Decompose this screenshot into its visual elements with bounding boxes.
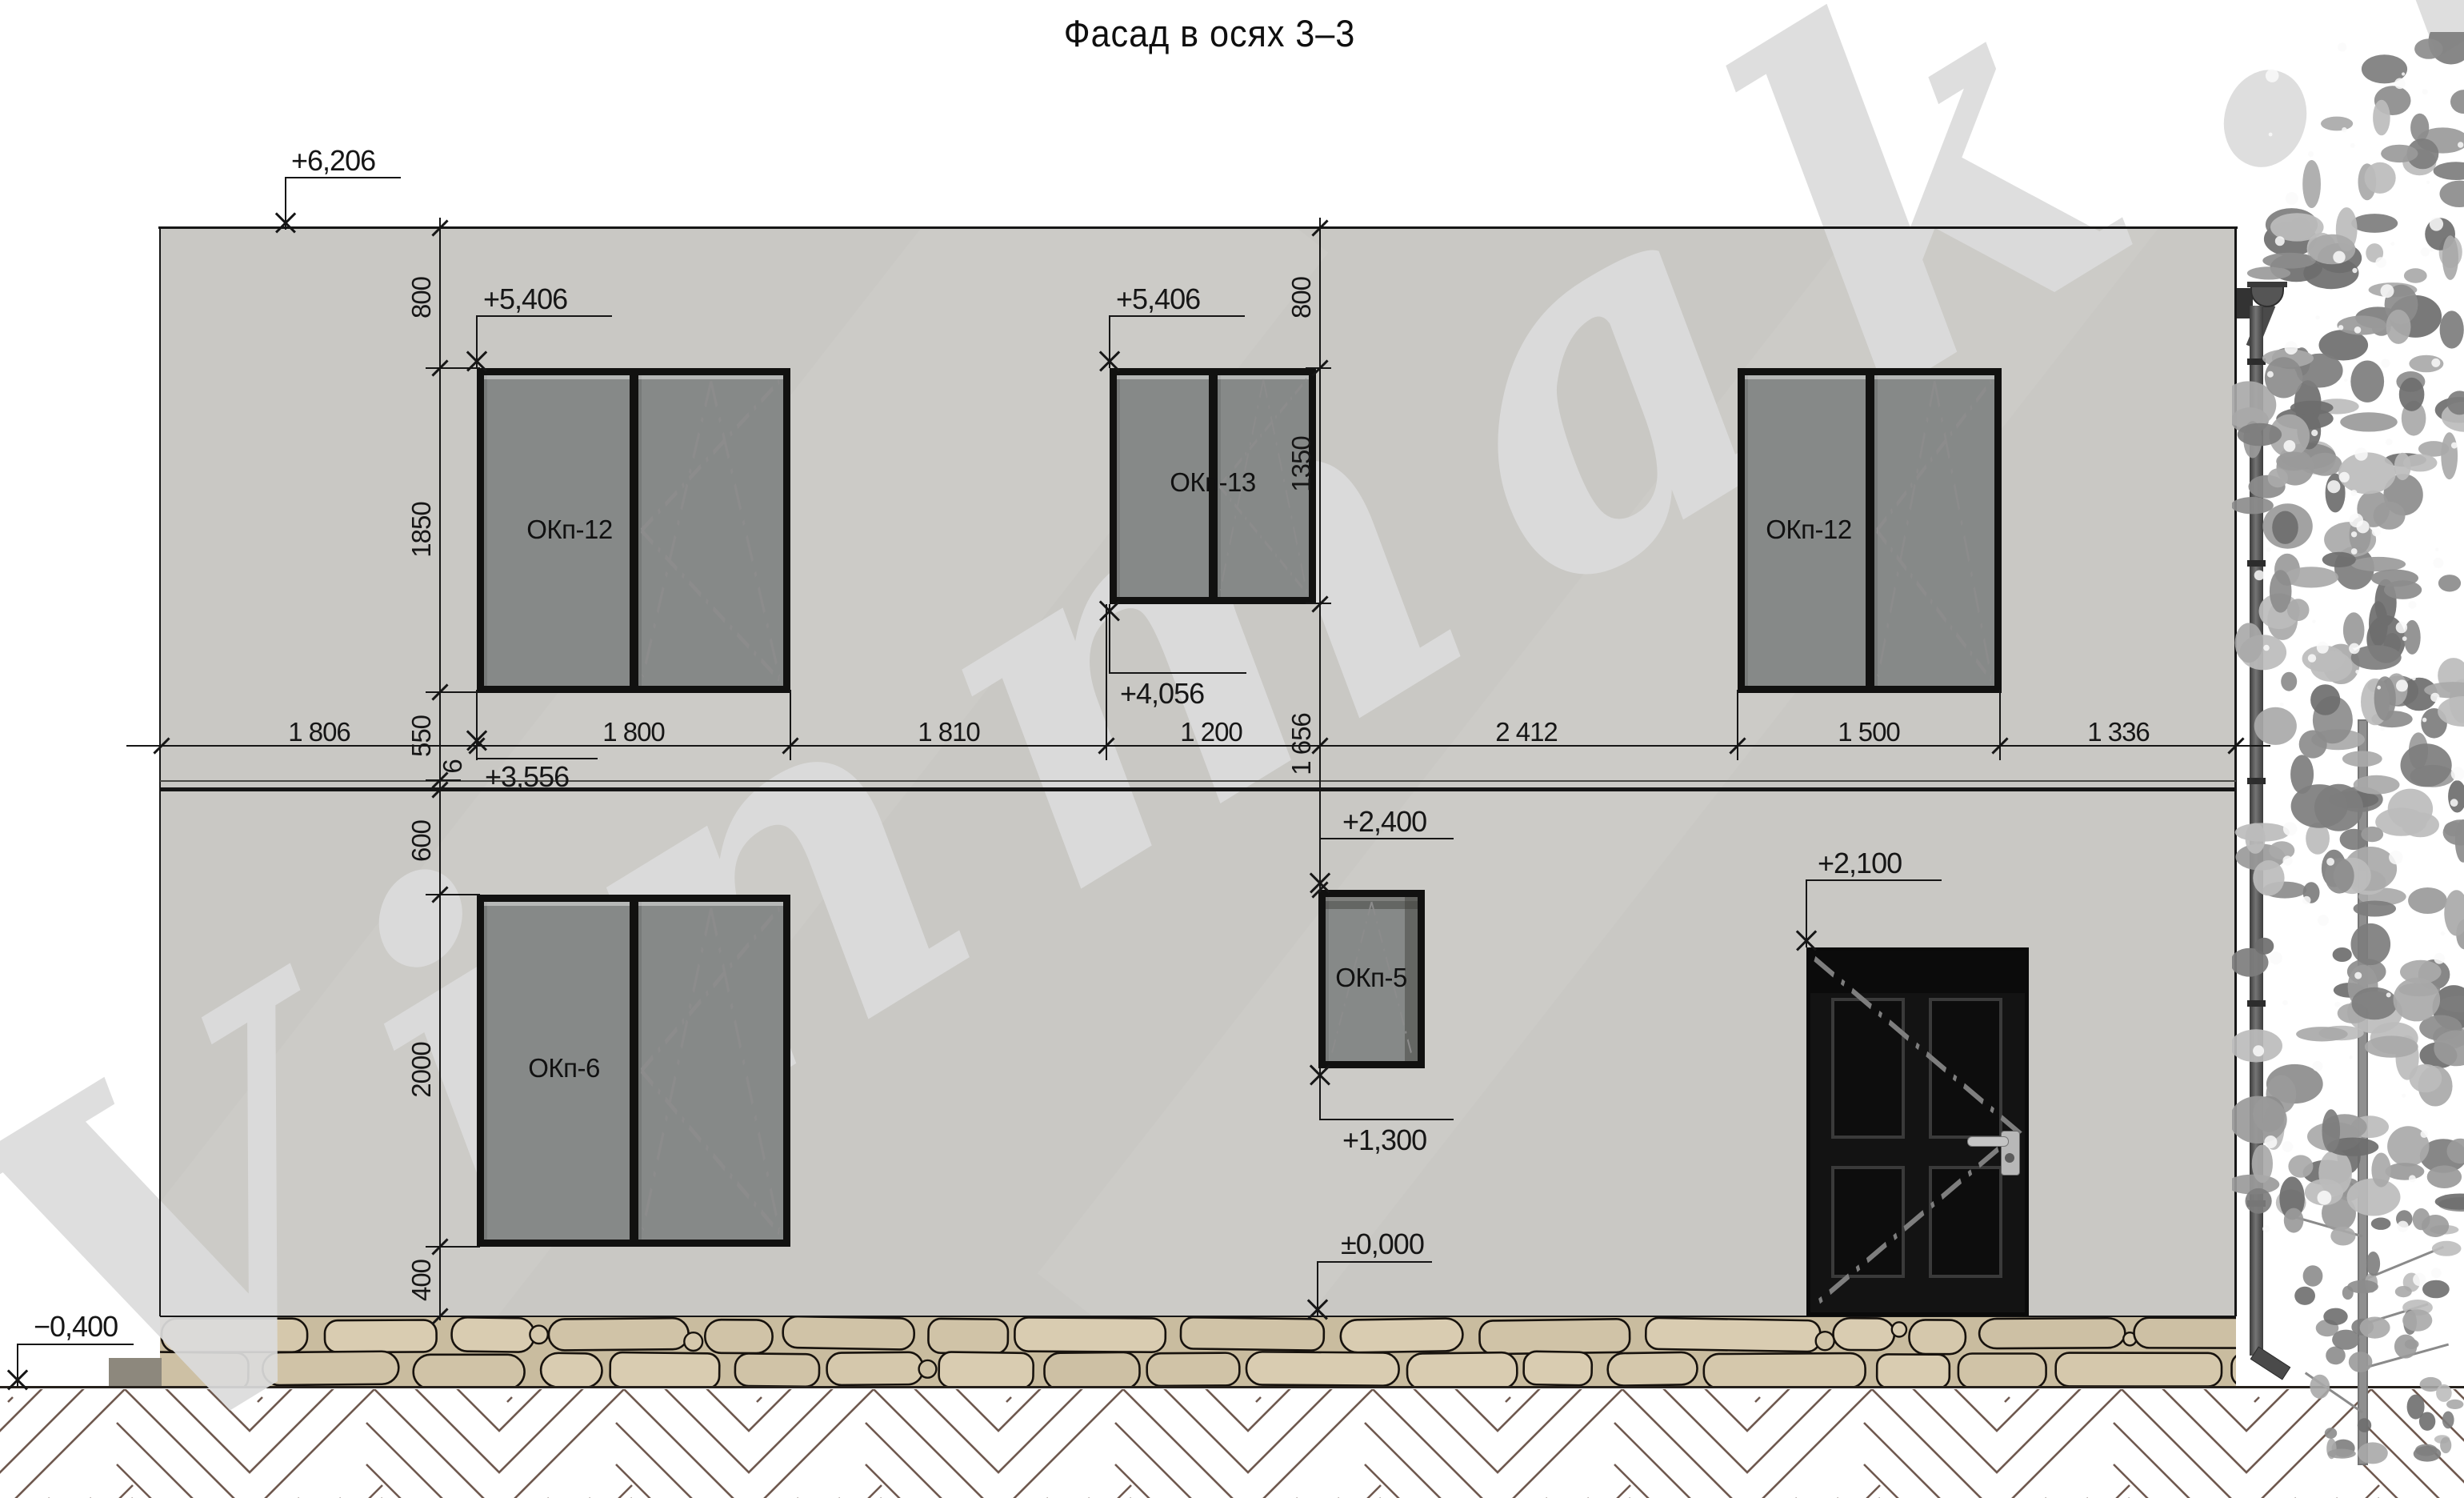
foliage-gap (2412, 677, 2416, 681)
elevation-shelf (476, 758, 598, 759)
foliage-blob (2342, 751, 2382, 767)
stone (1833, 1318, 1894, 1350)
wall-left-edge (159, 228, 161, 1316)
foliage-blob (2351, 214, 2398, 233)
foliage-gap (2441, 931, 2445, 935)
foliage-blob (2450, 90, 2464, 114)
mid-dim-column-line (1319, 218, 1321, 892)
foliage-gap (2312, 620, 2315, 623)
foliage-blob (2328, 1449, 2356, 1459)
foliage-gap (2334, 1002, 2340, 1007)
foliage-blob (2440, 181, 2464, 207)
elevation-shelf (1317, 1261, 1432, 1263)
foliage-gap (2413, 1273, 2426, 1286)
foliage-blob (2360, 1317, 2390, 1339)
window-label: ОКп-5 (1335, 963, 1407, 993)
foliage-blob (2375, 807, 2426, 835)
foliage-blob (2358, 1442, 2388, 1464)
pebble (1816, 1332, 1834, 1350)
foliage-blob (2408, 887, 2447, 914)
foliage-gap (2458, 142, 2463, 147)
foliage-blob (2303, 1265, 2323, 1287)
foliage-blob (2422, 1215, 2449, 1237)
foliage-gap (2282, 855, 2292, 865)
extension-line (426, 779, 461, 781)
foliage-blob (2440, 1437, 2451, 1453)
foliage-gap (2308, 654, 2316, 662)
foliage-gap (2398, 1221, 2409, 1232)
foliage-blob (2427, 1165, 2462, 1188)
foliage-gap (2317, 642, 2329, 654)
foliage-gap (2402, 72, 2405, 75)
foliage-blob (2440, 310, 2464, 348)
foliage-blob (2401, 743, 2452, 787)
foliage-gap (2264, 1136, 2277, 1148)
foliage-blob (2340, 412, 2398, 431)
foliage-blob (2386, 310, 2411, 344)
stone (1958, 1354, 2046, 1388)
foliage-blob (2276, 452, 2311, 471)
extension-line (1737, 690, 1738, 760)
foliage-gap (2426, 181, 2430, 184)
stone (826, 1352, 922, 1385)
foliage-gap (2372, 527, 2381, 536)
foliage-gap (2266, 547, 2271, 552)
elevation-label: −0,400 (34, 1310, 118, 1344)
foliage-blob (2246, 1188, 2272, 1214)
foliage-gap (2338, 42, 2346, 51)
foliage-blob (2299, 730, 2327, 758)
foliage-blob (2371, 1153, 2390, 1188)
foliage-gap (2354, 326, 2362, 334)
foliage-blob (2386, 1163, 2425, 1180)
foliage-gap (2450, 799, 2458, 807)
foliage-blob (2448, 780, 2464, 812)
foliage-blob (2414, 1446, 2442, 1462)
stone (2134, 1318, 2236, 1348)
stone (1523, 1352, 1592, 1386)
foliage-blob (2404, 268, 2427, 282)
foliage-gap (2254, 571, 2265, 581)
foliage-gap (2333, 251, 2345, 263)
foliage-gap (2431, 358, 2440, 367)
foliage-blob (2352, 987, 2398, 1020)
foliage-gap (2350, 143, 2355, 148)
stone (735, 1353, 820, 1387)
foliage-gap (2386, 992, 2391, 997)
foliage-gap (2422, 89, 2428, 94)
foliage-blob (2371, 1218, 2391, 1230)
foliage-gap (2422, 718, 2427, 723)
foliage-blob (2287, 599, 2310, 621)
pebble (1892, 1322, 1906, 1336)
foliage-blob (2414, 38, 2443, 58)
foliage-blob (2351, 557, 2406, 571)
foliage-blob (2394, 978, 2441, 1022)
foliage-gap (2351, 548, 2358, 555)
foliage-blob (2254, 938, 2274, 955)
foliage-gap (2326, 858, 2334, 866)
foliage-blob (2350, 361, 2384, 403)
foliage-gap (2302, 896, 2310, 904)
foliage-gap (2284, 440, 2296, 452)
extension-line (426, 894, 480, 895)
foliage-blob (2434, 162, 2464, 180)
foliage-gap (2421, 1131, 2428, 1138)
foliage-gap (2421, 247, 2430, 256)
h-dim-label: 1 800 (602, 717, 665, 747)
foliage-gap (2355, 670, 2359, 674)
foliage-gap (2409, 601, 2417, 609)
foliage-gap (2351, 531, 2357, 537)
foliage-blob (2394, 453, 2411, 480)
foliage-gap (2342, 127, 2346, 132)
foliage-blob (2332, 1330, 2359, 1350)
foliage-blob (2419, 1412, 2435, 1431)
foliage-blob (2330, 1227, 2355, 1246)
foliage-blob (2291, 784, 2348, 828)
window-label: ОКп-12 (1766, 515, 1851, 545)
stone (1979, 1318, 2125, 1348)
stone (1147, 1352, 1240, 1386)
foliage-gap (2313, 1061, 2323, 1071)
foliage-blob (2321, 117, 2353, 131)
foliage-blob (2443, 819, 2464, 845)
h-dim-label: 2 412 (1495, 717, 1558, 747)
foliage-blob (2268, 468, 2288, 487)
foliage-gap (2381, 358, 2390, 367)
foliage-gap (2338, 325, 2343, 330)
window-label: ОКп-12 (526, 515, 612, 545)
foliage-blob (2374, 502, 2406, 530)
foliage-gap (2357, 520, 2370, 533)
elevation-leader (1109, 604, 1110, 674)
pebble (684, 1332, 702, 1351)
extension-line (426, 1246, 480, 1248)
foliage-gap (2389, 851, 2402, 864)
foliage-blob (2384, 580, 2422, 599)
opening-symbol-icon (1874, 375, 1995, 686)
door-opening-symbol-icon (1810, 951, 2025, 1312)
drawing-title: Фасад в осях 3–3 (1064, 11, 1355, 55)
foliage-blob (2246, 823, 2266, 854)
foliage-gap (2318, 1191, 2332, 1205)
elevation-label: +5,406 (483, 282, 567, 316)
foliage-gap (2409, 1175, 2416, 1182)
h-dim-label: 1 336 (2087, 717, 2150, 747)
stone (1646, 1318, 1821, 1352)
foliage-gap (2396, 679, 2408, 691)
foliage-gap (2434, 953, 2445, 964)
foliage-gap (2263, 645, 2270, 651)
foliage-gap (2380, 727, 2385, 731)
stone (1407, 1352, 1518, 1388)
foliage-gap (2435, 547, 2438, 551)
elevation-label: +4,056 (1120, 677, 1204, 711)
pebble (919, 1360, 937, 1378)
foliage-blob (2394, 1335, 2417, 1359)
stone (1246, 1352, 1399, 1385)
foliage-blob (2252, 1144, 2273, 1183)
foliage-blob (2232, 1096, 2287, 1144)
foliage-blob (2361, 827, 2383, 842)
foliage-blob (2262, 253, 2316, 269)
foliage-blob (2381, 145, 2418, 162)
roof-edge-line (158, 226, 2238, 229)
extension-line (1106, 604, 1107, 760)
foliage-gap (2275, 236, 2285, 246)
foliage-blob (2446, 1400, 2463, 1409)
tree (2232, 32, 2464, 1472)
window-pane-casement (638, 375, 784, 686)
foliage-blob (2442, 235, 2458, 280)
foliage-blob (2325, 1428, 2337, 1439)
foliage-blob (2308, 234, 2355, 265)
foliage-blob (2365, 1035, 2418, 1057)
extension-line (790, 690, 791, 760)
foliage-gap (2394, 78, 2406, 90)
door-keyhole-icon (2005, 1153, 2014, 1163)
foliage-blob (2272, 511, 2298, 544)
foliage-blob (2284, 1208, 2304, 1233)
foliage-blob (2254, 707, 2297, 745)
foliage-gap (2375, 257, 2386, 268)
foliage-blob (2442, 1412, 2454, 1429)
foliage-blob (2310, 651, 2353, 682)
foliage-gap (2430, 217, 2443, 230)
foliage-blob (2333, 947, 2352, 962)
h-dim-label: 1 200 (1180, 717, 1242, 747)
foliage-blob (2347, 1179, 2401, 1216)
facade-drawing-sheet: Vinmak.ru ОКп-12 ОКп-13 (0, 0, 2464, 1498)
stone (705, 1320, 773, 1353)
foliage-gap (2396, 622, 2407, 633)
foliage-blob (2296, 1027, 2348, 1041)
window-pane-casement (1874, 375, 1995, 686)
foliage-blob (2235, 623, 2263, 663)
elevation-label: +2,400 (1342, 805, 1426, 839)
foliage-gap (2402, 1094, 2406, 1098)
extension-line (476, 690, 478, 760)
foliage-gap (2451, 443, 2458, 449)
foliage-gap (2327, 480, 2340, 493)
foliage-blob (2337, 315, 2386, 334)
stone (928, 1319, 1008, 1354)
foliage-blob (2441, 432, 2458, 479)
foliage-blob (2281, 672, 2297, 691)
foliage-gap (2280, 703, 2284, 707)
foliage-blob (2354, 775, 2400, 795)
elevation-label: +2,100 (1818, 847, 1902, 880)
foliage-gap (2433, 558, 2443, 568)
foliage-gap (2253, 1045, 2264, 1056)
extension-line (426, 691, 480, 693)
foliage-blob (2322, 552, 2356, 567)
foliage-blob (2399, 378, 2425, 411)
stone (782, 1316, 914, 1350)
floor-slab-upper-line (160, 780, 2236, 782)
elevation-label: +1,300 (1342, 1123, 1426, 1157)
interfloor-line (160, 787, 2236, 791)
stone (541, 1353, 602, 1388)
foliage-gap (2311, 430, 2318, 436)
foliage-gap (2390, 242, 2394, 246)
foliage-gap (2402, 636, 2407, 641)
elevation-label: ±0,000 (1341, 1228, 1424, 1261)
elevation-shelf (1109, 672, 1246, 674)
foliage-blob (2288, 1155, 2313, 1177)
foliage-blob (2444, 890, 2464, 935)
foliage-blob (2238, 423, 2282, 447)
foliage-blob (2436, 1384, 2452, 1402)
elevation-label: +5,406 (1116, 282, 1200, 316)
foliage-blob (2269, 841, 2294, 859)
foliage-gap (2431, 1268, 2442, 1278)
foliage-blob (2410, 114, 2429, 142)
foliage-blob (2354, 901, 2396, 917)
window-label: ОКп-6 (528, 1053, 600, 1083)
entrance-door (1806, 947, 2029, 1316)
elevation-label: +3,556 (485, 760, 569, 794)
foliage-gap (2267, 371, 2274, 378)
h-dim-label: 1 806 (288, 717, 350, 747)
opening-symbol-icon (638, 902, 784, 1240)
foliage-gap (2308, 151, 2314, 157)
window-label: ОКп-13 (1170, 467, 1255, 498)
foliage-blob (2284, 567, 2338, 587)
foliage-blob (2253, 860, 2284, 895)
stone (2056, 1353, 2222, 1387)
foliage-gap (2430, 248, 2434, 252)
stone (1877, 1354, 1950, 1388)
h-dim-label: 1 810 (918, 717, 980, 747)
stone (1479, 1319, 1630, 1354)
foliage-blob (2373, 100, 2390, 136)
window-okp6 (477, 895, 790, 1247)
foliage-gap (2283, 822, 2297, 835)
stone (1340, 1318, 1462, 1352)
foliage-gap (2354, 447, 2367, 460)
foliage-gap (2269, 133, 2273, 137)
stone (1044, 1352, 1139, 1388)
foliage-gap (2352, 268, 2357, 273)
foliage-gap (2282, 1000, 2288, 1006)
elevation-shelf (17, 1344, 134, 1345)
stone (1014, 1317, 1166, 1352)
stone (938, 1352, 1033, 1388)
foliage-gap (2350, 1055, 2353, 1059)
foliage-blob (2247, 266, 2290, 279)
foliage-gap (2344, 379, 2347, 382)
foliage-blob (2351, 923, 2391, 965)
stone (1607, 1352, 1697, 1386)
stone (1909, 1320, 1966, 1354)
foliage-gap (2262, 1225, 2270, 1232)
foliage-blob (2366, 1252, 2380, 1276)
foliage-gap (2349, 643, 2360, 655)
foliage-blob (2402, 1309, 2432, 1332)
foliage-blob (2422, 1280, 2450, 1299)
foliage-gap (2354, 972, 2362, 979)
stone (610, 1352, 719, 1388)
foliage-gap (2285, 342, 2298, 355)
foliage-gap (2386, 439, 2393, 446)
foliage-gap (2318, 915, 2329, 926)
foliage-blob (2358, 1418, 2371, 1432)
foliage-blob (2374, 676, 2396, 720)
extension-line (1999, 690, 2001, 760)
foliage-gap (2430, 693, 2439, 702)
foliage-gap (2266, 69, 2279, 82)
foliage-gap (2381, 284, 2394, 298)
foliage-gap (2315, 315, 2319, 319)
foliage-blob (2432, 1241, 2462, 1256)
foliage-blob (2310, 684, 2340, 715)
elevation-label: +6,206 (291, 144, 375, 178)
foliage-gap (2270, 951, 2282, 964)
foliage-blob (2322, 1109, 2341, 1152)
door-handle-icon (1967, 1136, 2009, 1147)
foliage-blob (2323, 1308, 2347, 1325)
elevation-shelf (1319, 1119, 1454, 1120)
foliage-gap (2377, 686, 2381, 690)
foliage-blob (2347, 1280, 2378, 1294)
foliage-blob (2310, 1375, 2330, 1399)
foliage-blob (2302, 160, 2321, 208)
foliage-blob (2395, 1286, 2412, 1297)
h-dim-label: 1 500 (1838, 717, 1900, 747)
foliage-blob (2343, 612, 2365, 647)
foliage-blob (2438, 575, 2461, 591)
window-okp12-left (477, 368, 790, 693)
window-pane-casement (638, 902, 784, 1240)
foliage-blob (2232, 497, 2274, 514)
foliage-gap (2350, 490, 2357, 496)
opening-symbol-icon (638, 375, 784, 686)
foliage-blob (2435, 1194, 2464, 1210)
foliage-gap (2282, 1141, 2294, 1152)
foliage-blob (2265, 357, 2302, 398)
foliage-blob (2349, 1352, 2373, 1372)
foliage-gap (2286, 192, 2298, 205)
stone (1704, 1353, 1866, 1388)
foliage-blob (2294, 1287, 2315, 1305)
foliage-gap (2339, 472, 2350, 483)
stone (1181, 1317, 1324, 1351)
foliage-blob (2365, 162, 2396, 194)
